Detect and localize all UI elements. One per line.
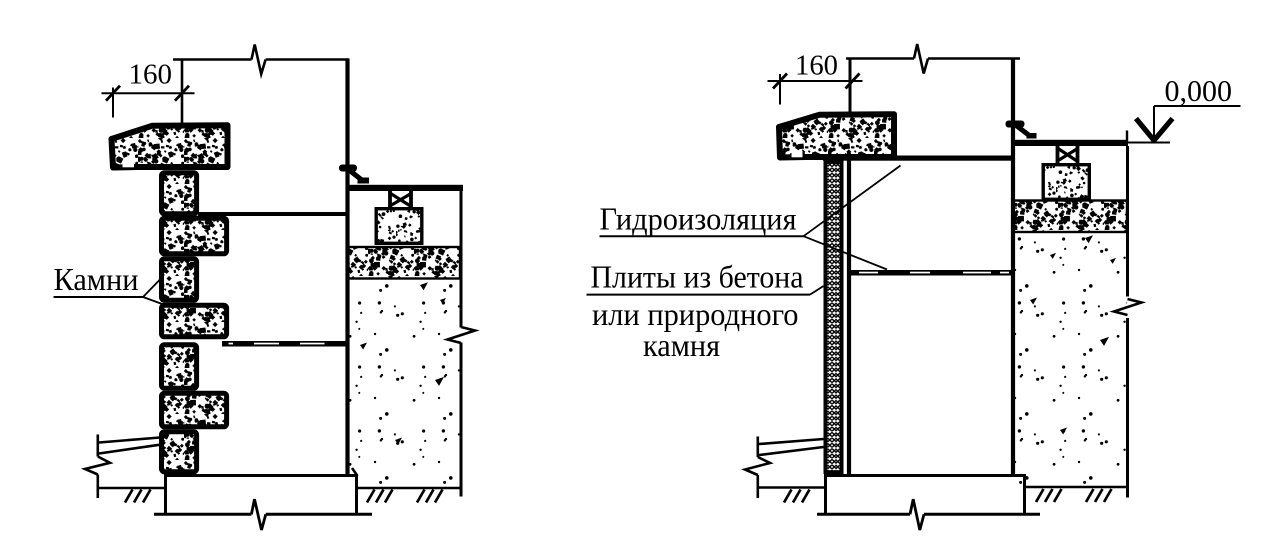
svg-text:Плиты из бетона: Плиты из бетона: [591, 260, 804, 295]
svg-text:0,000: 0,000: [1165, 73, 1233, 108]
svg-text:камня: камня: [643, 328, 720, 363]
svg-text:Гидроизоляция: Гидроизоляция: [600, 201, 797, 236]
svg-text:160: 160: [129, 58, 173, 90]
svg-text:160: 160: [795, 49, 838, 81]
svg-text:или природного: или природного: [592, 297, 799, 332]
svg-text:Камни: Камни: [54, 262, 139, 297]
